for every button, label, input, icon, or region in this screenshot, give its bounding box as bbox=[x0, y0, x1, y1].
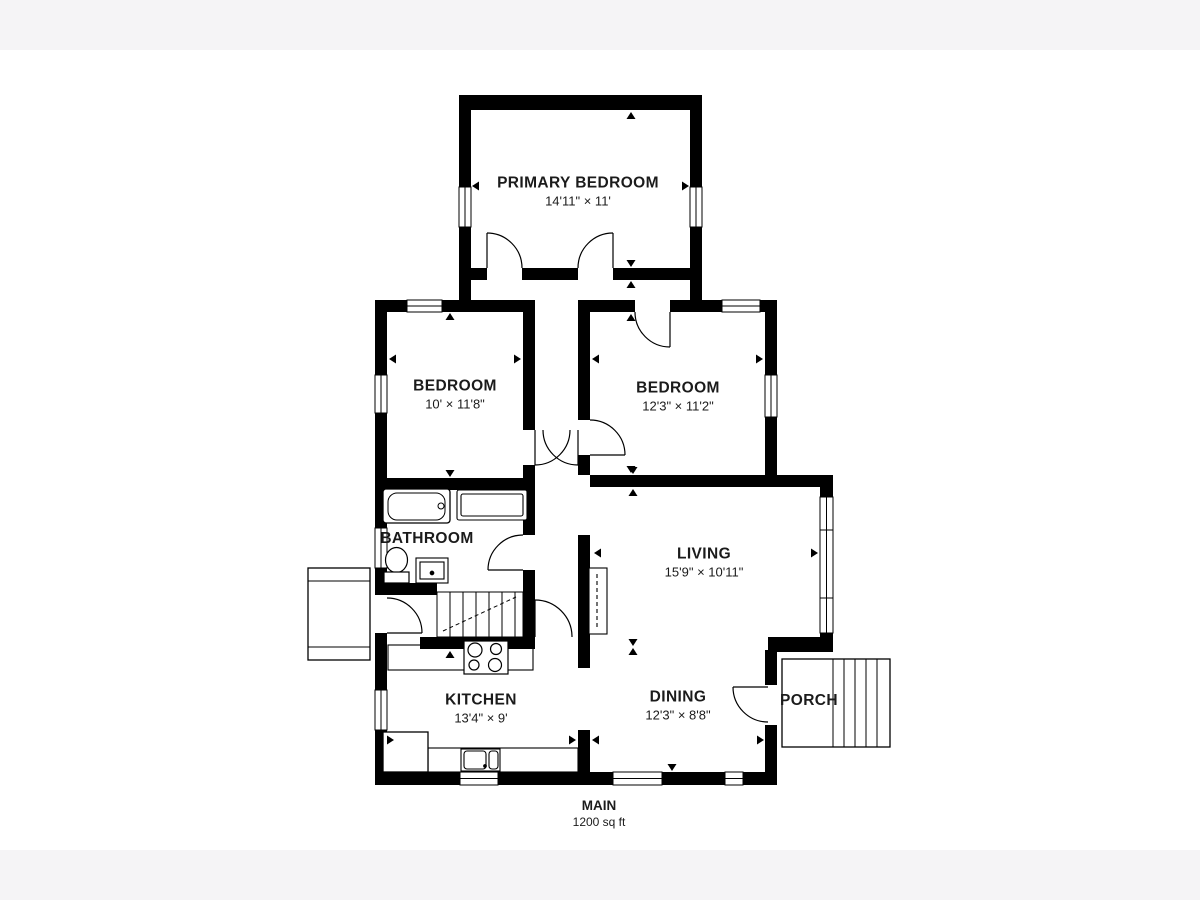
door-primary-left bbox=[487, 233, 522, 268]
window bbox=[407, 300, 442, 312]
room-name: DINING bbox=[645, 689, 710, 707]
stove bbox=[464, 641, 508, 674]
fireplace bbox=[589, 568, 607, 634]
closet bbox=[457, 490, 527, 520]
toilet bbox=[384, 548, 409, 584]
staircase bbox=[437, 592, 523, 637]
floorplan-page: PRIMARY BEDROOM 14'11" × 11' BEDROOM 10'… bbox=[0, 0, 1200, 900]
window bbox=[722, 300, 760, 312]
door-stair-hall bbox=[535, 600, 572, 637]
door-bedroom-right-top bbox=[635, 312, 670, 347]
room-label-bathroom: BATHROOM bbox=[380, 530, 473, 548]
floor-name: MAIN bbox=[573, 798, 626, 814]
floor-label: MAIN 1200 sq ft bbox=[573, 798, 626, 830]
room-label-kitchen: KITCHEN 13'4" × 9' bbox=[445, 692, 517, 727]
floor-area: 1200 sq ft bbox=[573, 815, 626, 829]
window bbox=[613, 772, 662, 785]
door-bedroom-left-hall bbox=[535, 430, 570, 465]
door-primary-right bbox=[578, 233, 613, 268]
room-name: KITCHEN bbox=[445, 692, 517, 710]
door-hall-living bbox=[543, 430, 578, 465]
room-dims: 12'3" × 11'2" bbox=[636, 399, 720, 414]
bathtub bbox=[383, 489, 450, 523]
room-dims: 10' × 11'8" bbox=[413, 397, 497, 412]
room-name: PORCH bbox=[780, 692, 838, 710]
dimension-markers bbox=[387, 112, 818, 771]
kitchen-sink bbox=[461, 749, 500, 771]
window bbox=[725, 772, 743, 785]
room-label-living: LIVING 15'9" × 10'11" bbox=[665, 546, 744, 581]
window bbox=[459, 187, 471, 227]
window-living-long bbox=[820, 497, 833, 633]
room-dims: 14'11" × 11' bbox=[497, 194, 659, 209]
room-name: PRIMARY BEDROOM bbox=[497, 175, 659, 193]
room-label-bedroom-right: BEDROOM 12'3" × 11'2" bbox=[636, 380, 720, 415]
window bbox=[375, 690, 387, 730]
room-name: BATHROOM bbox=[380, 530, 473, 548]
room-label-dining: DINING 12'3" × 8'8" bbox=[645, 689, 710, 724]
window bbox=[690, 187, 702, 227]
room-dims: 13'4" × 9' bbox=[445, 711, 517, 726]
room-label-bedroom-left: BEDROOM 10' × 11'8" bbox=[413, 378, 497, 413]
room-label-primary-bedroom: PRIMARY BEDROOM 14'11" × 11' bbox=[497, 175, 659, 210]
window bbox=[460, 772, 498, 785]
floor-plan-drawing bbox=[0, 0, 1200, 900]
door-bedroom-right-west bbox=[590, 420, 625, 455]
side-landing bbox=[308, 568, 370, 660]
window bbox=[765, 375, 777, 417]
room-label-porch: PORCH bbox=[780, 692, 838, 710]
door-bathroom bbox=[488, 535, 523, 570]
vanity-sink bbox=[416, 558, 448, 583]
room-dims: 12'3" × 8'8" bbox=[645, 708, 710, 723]
door-porch bbox=[733, 687, 768, 722]
room-dims: 15'9" × 10'11" bbox=[665, 565, 744, 580]
window bbox=[375, 375, 387, 413]
room-name: BEDROOM bbox=[413, 378, 497, 396]
room-name: BEDROOM bbox=[636, 380, 720, 398]
door-side-entry bbox=[387, 598, 422, 633]
room-name: LIVING bbox=[665, 546, 744, 564]
